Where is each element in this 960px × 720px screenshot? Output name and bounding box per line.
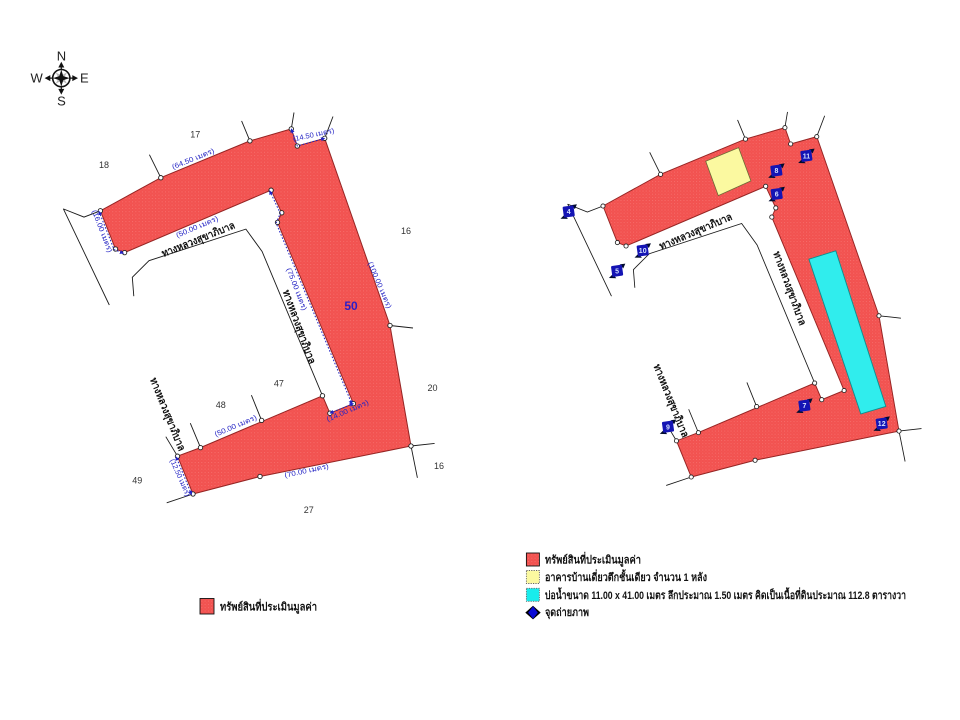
svg-text:จุดถ่ายภาพ: จุดถ่ายภาพ [545,607,589,620]
svg-text:12: 12 [878,421,886,428]
svg-text:E: E [80,71,89,86]
svg-text:ทรัพย์สินที่ประเมินมูลค่า: ทรัพย์สินที่ประเมินมูลค่า [545,552,641,568]
svg-text:47: 47 [274,379,284,389]
svg-text:17: 17 [190,129,200,139]
svg-text:ทรัพย์สินที่ประเมินมูลค่า: ทรัพย์สินที่ประเมินมูลค่า [220,599,317,615]
svg-text:8: 8 [774,168,778,175]
svg-text:16: 16 [434,461,444,471]
svg-text:บ่อน้ำขนาด 11.00 x 41.00 เมตร: บ่อน้ำขนาด 11.00 x 41.00 เมตร ลึกประมาณ … [545,587,906,602]
svg-text:48: 48 [216,400,226,410]
svg-text:S: S [57,94,66,109]
svg-text:4: 4 [567,209,571,216]
svg-text:N: N [57,49,66,64]
svg-text:49: 49 [132,475,142,485]
svg-text:27: 27 [304,505,314,515]
svg-text:7: 7 [802,403,806,410]
svg-text:5: 5 [615,268,619,275]
svg-text:20: 20 [427,383,437,393]
svg-text:10: 10 [639,248,647,255]
svg-text:6: 6 [775,192,779,199]
svg-text:9: 9 [666,424,670,431]
svg-text:W: W [30,71,43,86]
svg-text:16: 16 [401,226,411,236]
svg-text:18: 18 [99,160,109,170]
svg-text:อาคารบ้านเดี่ยวตึกชั้นเดียว จำ: อาคารบ้านเดี่ยวตึกชั้นเดียว จำนวน 1 หลัง [545,569,707,584]
svg-text:11: 11 [803,153,811,160]
svg-text:50: 50 [344,299,358,313]
